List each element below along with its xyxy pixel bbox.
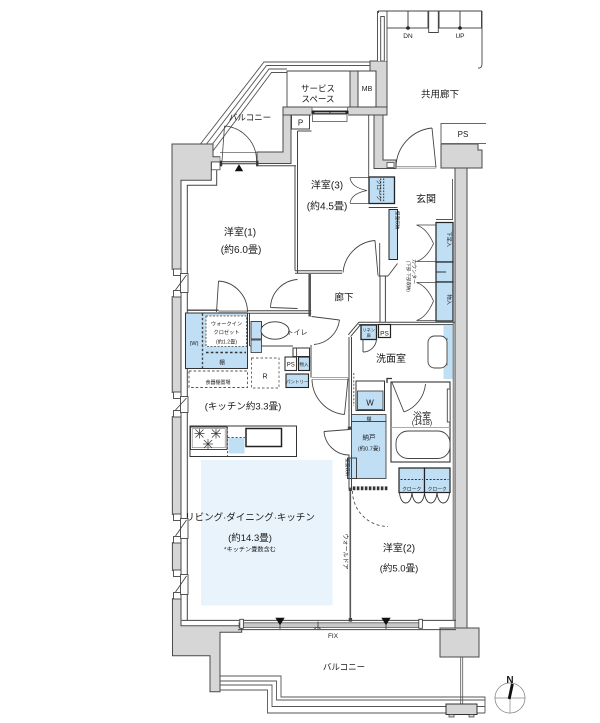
svg-text:棚: 棚 xyxy=(219,359,225,367)
svg-text:ウォールドア: ウォールドア xyxy=(342,534,350,570)
svg-text:クロゼット: クロゼット xyxy=(214,328,240,336)
svg-text:納戸: 納戸 xyxy=(363,433,377,442)
svg-text:バルコニー: バルコニー xyxy=(229,113,271,123)
svg-text:下足入: 下足入 xyxy=(446,232,453,248)
svg-text:(約1.2畳): (約1.2畳) xyxy=(216,338,237,346)
svg-text:DN: DN xyxy=(403,33,413,40)
svg-text:洗面室: 洗面室 xyxy=(376,352,406,365)
svg-text:ウォークイン: ウォークイン xyxy=(211,320,242,328)
svg-text:バルコニー: バルコニー xyxy=(323,662,365,672)
svg-text:PS: PS xyxy=(458,130,469,139)
svg-text:(約6.0畳): (約6.0畳) xyxy=(221,243,262,256)
svg-text:W: W xyxy=(366,399,374,408)
svg-text:FIX: FIX xyxy=(328,633,339,640)
svg-text:共用廊下: 共用廊下 xyxy=(421,89,459,101)
svg-text:壁面収納: 壁面収納 xyxy=(344,459,351,477)
svg-text:クローク: クローク xyxy=(428,487,447,493)
svg-text:物入: 物入 xyxy=(446,295,454,305)
svg-text:洋室(1): 洋室(1) xyxy=(224,226,256,239)
svg-text:玄関: 玄関 xyxy=(416,193,436,206)
svg-text:PS: PS xyxy=(287,363,295,369)
svg-text:(約5.0畳): (約5.0畳) xyxy=(380,563,419,575)
svg-text:(約0.7畳): (約0.7畳) xyxy=(358,445,380,453)
svg-text:R: R xyxy=(262,374,267,381)
svg-text:食器棚置場: 食器棚置場 xyxy=(205,379,230,386)
svg-text:リビング·ダイニング·キッチン: リビング·ダイニング·キッチン xyxy=(185,512,315,524)
svg-text:(下部·下部収納): (下部·下部収納) xyxy=(405,261,412,292)
svg-text:*キッチン畳数含む: *キッチン畳数含む xyxy=(224,546,276,554)
svg-text:N: N xyxy=(506,675,513,686)
svg-text:(約4.5畳): (約4.5畳) xyxy=(307,200,348,213)
svg-text:クローク: クローク xyxy=(375,180,382,201)
svg-text:スペース: スペース xyxy=(302,94,335,104)
svg-text:クローク: クローク xyxy=(402,487,421,493)
svg-text:廊下: 廊下 xyxy=(334,292,353,304)
svg-text:トイレ: トイレ xyxy=(287,330,308,337)
svg-text:サービス: サービス xyxy=(301,84,335,94)
svg-text:洋室(3): 洋室(3) xyxy=(311,179,343,192)
svg-text:UP: UP xyxy=(455,33,464,40)
svg-text:物入: 物入 xyxy=(300,361,309,368)
svg-text:(約14.3畳): (約14.3畳) xyxy=(228,532,272,544)
svg-text:MB: MB xyxy=(362,86,373,93)
svg-text:庫: 庫 xyxy=(367,332,371,339)
svg-text:洋室(2): 洋室(2) xyxy=(383,542,415,555)
svg-text:パントリー: パントリー xyxy=(286,380,309,385)
svg-text:(W): (W) xyxy=(190,341,199,347)
svg-text:(1418): (1418) xyxy=(412,420,432,427)
svg-text:壁面収納: 壁面収納 xyxy=(394,211,401,230)
svg-text:P: P xyxy=(298,119,303,128)
svg-text:PS: PS xyxy=(380,331,389,338)
svg-text:(キッチン約3.3畳): (キッチン約3.3畳) xyxy=(205,401,282,413)
